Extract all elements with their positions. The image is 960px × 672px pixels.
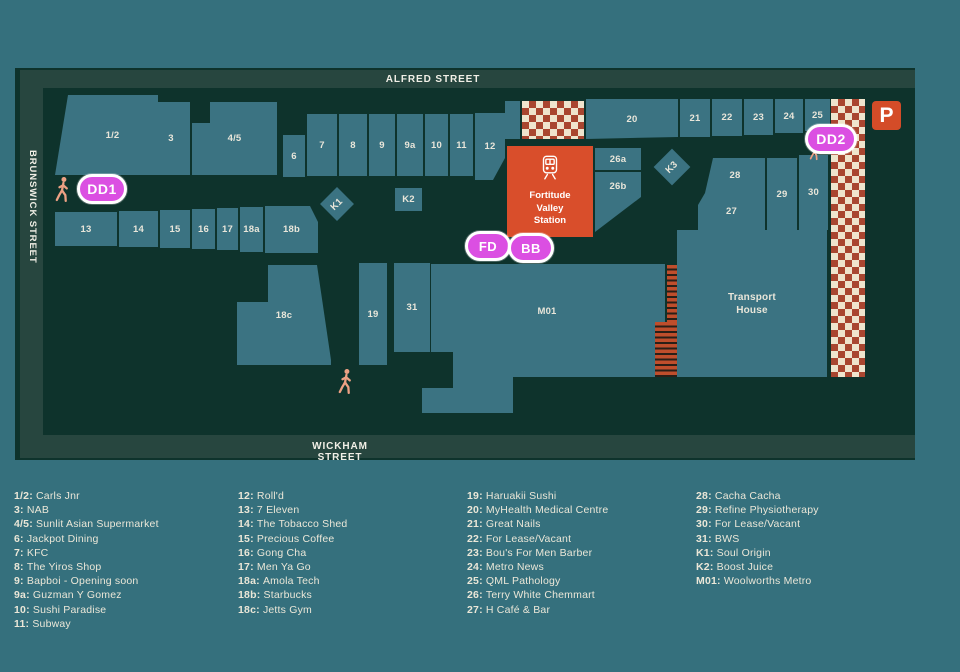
tenancy-sliver [505, 101, 520, 139]
legend-item: 18b: Starbucks [238, 588, 460, 602]
tenancy-31: 31 [394, 263, 430, 352]
tenancy-label: 21 [690, 113, 701, 124]
tenancy-label: 20 [627, 114, 638, 125]
tenancy-9a: 9a [397, 114, 423, 176]
transport-house-label: Transport House [728, 291, 776, 317]
tenancy-1-2: 1/2 [55, 95, 164, 175]
legend-item: 13: 7 Eleven [238, 503, 460, 517]
tenancy-label: 27 [726, 206, 737, 217]
tenancy-label: 14 [133, 224, 144, 235]
tenancy-label: 3 [168, 133, 173, 144]
legend-item: 3: NAB [14, 503, 236, 517]
parking-label: P [879, 104, 893, 128]
legend-column-1: 1/2: Carls Jnr3: NAB4/5: Sunlit Asian Su… [14, 489, 236, 631]
tenancy-4-5: 4/5 [192, 102, 277, 175]
legend-item: 18a: Amola Tech [238, 574, 460, 588]
legend-item: 1/2: Carls Jnr [14, 489, 236, 503]
kiosk-label: K1 [329, 196, 346, 213]
fortitude-valley-station: Fortitude Valley Station [507, 146, 593, 237]
tenancy-26b: 26b [595, 172, 641, 241]
legend-item: K1: Soul Origin [696, 546, 918, 560]
tenancy-6: 6 [283, 135, 305, 177]
kiosk-k1: K1 [320, 187, 354, 221]
tenancy-label: 28 [730, 170, 741, 181]
legend-item: 9a: Guzman Y Gomez [14, 588, 236, 602]
tenancy-18a: 18a [240, 207, 263, 252]
legend-column-2: 12: Roll'd13: 7 Eleven14: The Tobacco Sh… [238, 489, 460, 617]
tenancy-18c: 18c [237, 265, 331, 365]
legend-item: 16: Gong Cha [238, 546, 460, 560]
tenancy-m01: M01 [422, 264, 665, 413]
tenancy-label: 13 [81, 224, 92, 235]
tenancy-label: 25 [812, 110, 823, 121]
legend-item: 26: Terry White Chemmart [467, 588, 689, 602]
tenancy-28: 28 [705, 158, 765, 193]
kiosk-label: K2 [402, 194, 415, 205]
legend-item: 27: H Café & Bar [467, 603, 689, 617]
tenancy-label: 23 [753, 112, 764, 123]
tenancy-label: 4/5 [228, 133, 242, 144]
legend-item: 19: Haruakii Sushi [467, 489, 689, 503]
checker-block [522, 101, 584, 139]
legend-column-4: 28: Cacha Cacha29: Refine Physiotherapy3… [696, 489, 918, 588]
mall-map-page: ALFRED STREET BRUNSWICK STREET WICKHAM S… [0, 0, 960, 672]
tenancy-label: 7 [319, 140, 324, 151]
legend-item: M01: Woolworths Metro [696, 574, 918, 588]
legend-item: 7: KFC [14, 546, 236, 560]
wickham-street-label: WICKHAM STREET [290, 441, 390, 463]
legend-item: 30: For Lease/Vacant [696, 517, 918, 531]
marker-label: DD1 [87, 181, 117, 197]
tenancy-11: 11 [450, 114, 473, 176]
tenancy-27: 27 [698, 193, 765, 230]
tenancy-label: 12 [485, 141, 496, 152]
tenancy-label: 18a [243, 224, 259, 235]
tenancy-label: 22 [722, 112, 733, 123]
tenancy-label: 1/2 [106, 130, 120, 141]
tenancy-23: 23 [744, 99, 773, 135]
tenancy-20: 20 [586, 99, 678, 139]
tenancy-label: M01 [525, 306, 569, 317]
kiosk-label: K3 [664, 159, 681, 176]
legend-column-3: 19: Haruakii Sushi20: MyHealth Medical C… [467, 489, 689, 617]
tenancy-label: 16 [198, 224, 209, 235]
tenancy-3: 3 [152, 102, 190, 175]
legend-item: 21: Great Nails [467, 517, 689, 531]
legend-item: 15: Precious Coffee [238, 532, 460, 546]
tenancy-18b: 18b [265, 206, 318, 253]
tenancy-17: 17 [217, 208, 238, 250]
tenancy-label: 9a [405, 140, 416, 151]
tenancy-13: 13 [55, 212, 117, 246]
pedestrian-icon [53, 176, 72, 208]
legend-item: 12: Roll'd [238, 489, 460, 503]
legend-item: 8: The Yiros Shop [14, 560, 236, 574]
tenancy-label: 29 [777, 189, 788, 200]
tenancy-label: 8 [350, 140, 355, 151]
tenancy-10: 10 [425, 114, 448, 176]
legend-item: 23: Bou's For Men Barber [467, 546, 689, 560]
alfred-street-band: ALFRED STREET [43, 70, 915, 88]
tenancy-label: 26b [610, 181, 627, 192]
tenancy-21: 21 [680, 99, 710, 137]
tenancy-label: 24 [784, 111, 795, 122]
tenancy-8: 8 [339, 114, 367, 176]
marker-label: BB [521, 241, 541, 256]
kiosk-k3: K3 [654, 149, 691, 186]
alfred-street-label: ALFRED STREET [383, 74, 483, 85]
pedestrian-icon [336, 368, 355, 400]
legend-item: 14: The Tobacco Shed [238, 517, 460, 531]
tenancy-19: 19 [359, 263, 387, 365]
tenancy-label: 26a [610, 154, 626, 165]
tenancy-label: 10 [431, 140, 442, 151]
legend-item: 11: Subway [14, 617, 236, 631]
kiosk-k2: K2 [395, 188, 422, 211]
tenancy-22: 22 [712, 99, 742, 136]
tenancy-16: 16 [192, 209, 215, 249]
tenancy-9: 9 [369, 114, 395, 176]
legend-item: 24: Metro News [467, 560, 689, 574]
marker-label: FD [479, 239, 497, 254]
tenancy-label: 11 [456, 140, 466, 151]
legend-item: 25: QML Pathology [467, 574, 689, 588]
wickham-street-band: WICKHAM STREET [20, 435, 915, 458]
legend-item: 9: Bapboi - Opening soon [14, 574, 236, 588]
tenancy-label: 17 [222, 224, 233, 235]
tenancy-14: 14 [119, 211, 158, 247]
marker-bb[interactable]: BB [508, 233, 554, 263]
legend-item: 28: Cacha Cacha [696, 489, 918, 503]
tenancy-label: 18b [283, 224, 300, 235]
tenancy-label: 6 [291, 151, 296, 162]
tenancy-26a: 26a [595, 148, 641, 170]
tenancy-label: 18c [276, 310, 292, 321]
transport-house: Transport House [677, 230, 827, 377]
site-map: ALFRED STREET BRUNSWICK STREET WICKHAM S… [15, 68, 915, 460]
legend-item: 4/5: Sunlit Asian Supermarket [14, 517, 236, 531]
parking-icon: P [872, 101, 901, 130]
tenancy-15: 15 [160, 210, 190, 248]
marker-dd2[interactable]: DD2 [805, 124, 857, 154]
station-name: Fortitude Valley Station [529, 190, 570, 227]
brunswick-street-band: BRUNSWICK STREET [20, 70, 43, 458]
train-icon [539, 155, 561, 186]
legend-item: 31: BWS [696, 532, 918, 546]
tenancy-29: 29 [767, 158, 797, 230]
legend-item: 6: Jackpot Dining [14, 532, 236, 546]
legend-item: 29: Refine Physiotherapy [696, 503, 918, 517]
marker-fd[interactable]: FD [465, 231, 511, 261]
legend-item: 22: For Lease/Vacant [467, 532, 689, 546]
legend-item: 20: MyHealth Medical Centre [467, 503, 689, 517]
tenancy-label: 15 [170, 224, 181, 235]
legend-item: 10: Sushi Paradise [14, 603, 236, 617]
tenancy-label: 9 [379, 140, 384, 151]
legend-item: 17: Men Ya Go [238, 560, 460, 574]
tenancy-24: 24 [775, 99, 803, 133]
tenancy-label: 19 [368, 309, 379, 320]
tenancy-label: 31 [407, 302, 418, 313]
marker-label: DD2 [816, 131, 846, 147]
tenancy-30: 30 [799, 155, 828, 230]
brunswick-street-label: BRUNSWICK STREET [27, 150, 38, 264]
marker-dd1[interactable]: DD1 [77, 174, 127, 204]
legend-item: 18c: Jetts Gym [238, 603, 460, 617]
legend-item: K2: Boost Juice [696, 560, 918, 574]
tenancy-label: 30 [808, 187, 819, 198]
tenancy-7: 7 [307, 114, 337, 176]
tenancy-12: 12 [475, 113, 505, 180]
